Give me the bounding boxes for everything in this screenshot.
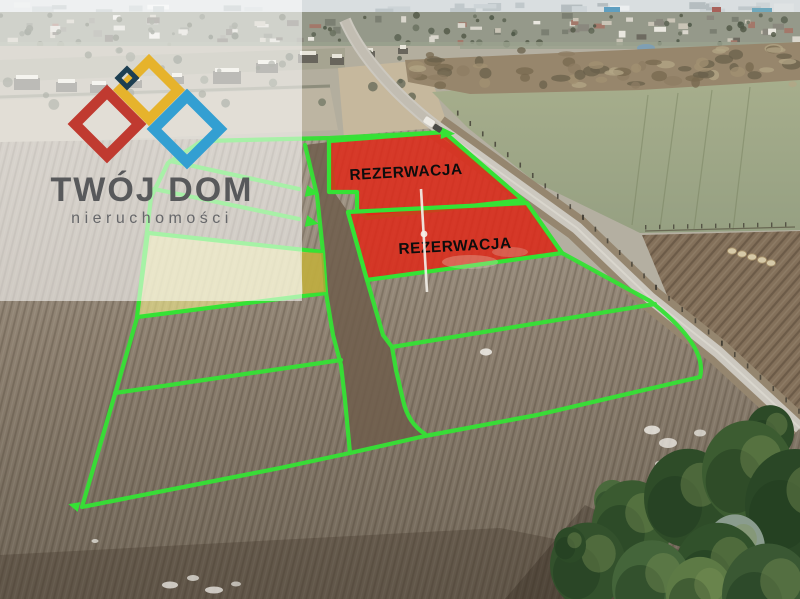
logo-title: TWÓJ DOM bbox=[51, 171, 254, 209]
aerial-photo-canvas: REZERWACJA REZERWACJA bbox=[0, 0, 800, 599]
logo-subtitle: nieruchomości bbox=[71, 210, 233, 227]
straw-patch bbox=[300, 252, 326, 294]
aerial-photo: REZERWACJA REZERWACJA bbox=[0, 0, 800, 599]
watermark-panel: TWÓJ DOM nieruchomości bbox=[0, 0, 302, 301]
watermark-backdrop bbox=[0, 0, 302, 301]
